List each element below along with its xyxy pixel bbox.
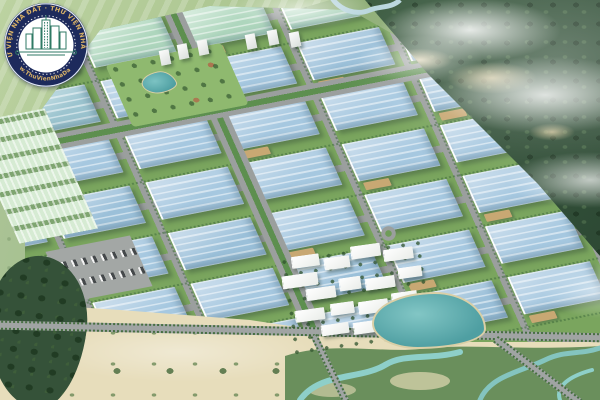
office-building <box>364 275 395 291</box>
office-building <box>305 285 336 301</box>
office-building <box>294 307 325 323</box>
office-building <box>350 243 382 260</box>
park-pond <box>138 69 181 96</box>
aerial-rendering: THƯ VIỆN NHÀ ĐẤT · THƯ VIỆN NHÀ ĐẤT www.… <box>0 0 600 400</box>
office-building <box>323 255 350 271</box>
office-building <box>397 265 422 279</box>
office-building <box>338 276 362 292</box>
roundabout <box>380 226 397 241</box>
office-building <box>383 246 414 262</box>
office-building <box>330 301 355 316</box>
warehouse-roof <box>190 268 289 322</box>
lake <box>372 292 486 349</box>
office-building <box>320 322 349 337</box>
warehouse-roof <box>168 217 267 271</box>
warehouse-roof <box>341 128 440 182</box>
warehouse-roof <box>145 166 244 220</box>
office-building <box>281 272 318 290</box>
thuviennhadat-watermark-badge: THƯ VIỆN NHÀ ĐẤT · THƯ VIỆN NHÀ ĐẤT www.… <box>2 1 90 89</box>
badge-inner-circle <box>19 18 74 73</box>
warehouse-roof <box>507 261 600 315</box>
office-building <box>291 253 320 269</box>
